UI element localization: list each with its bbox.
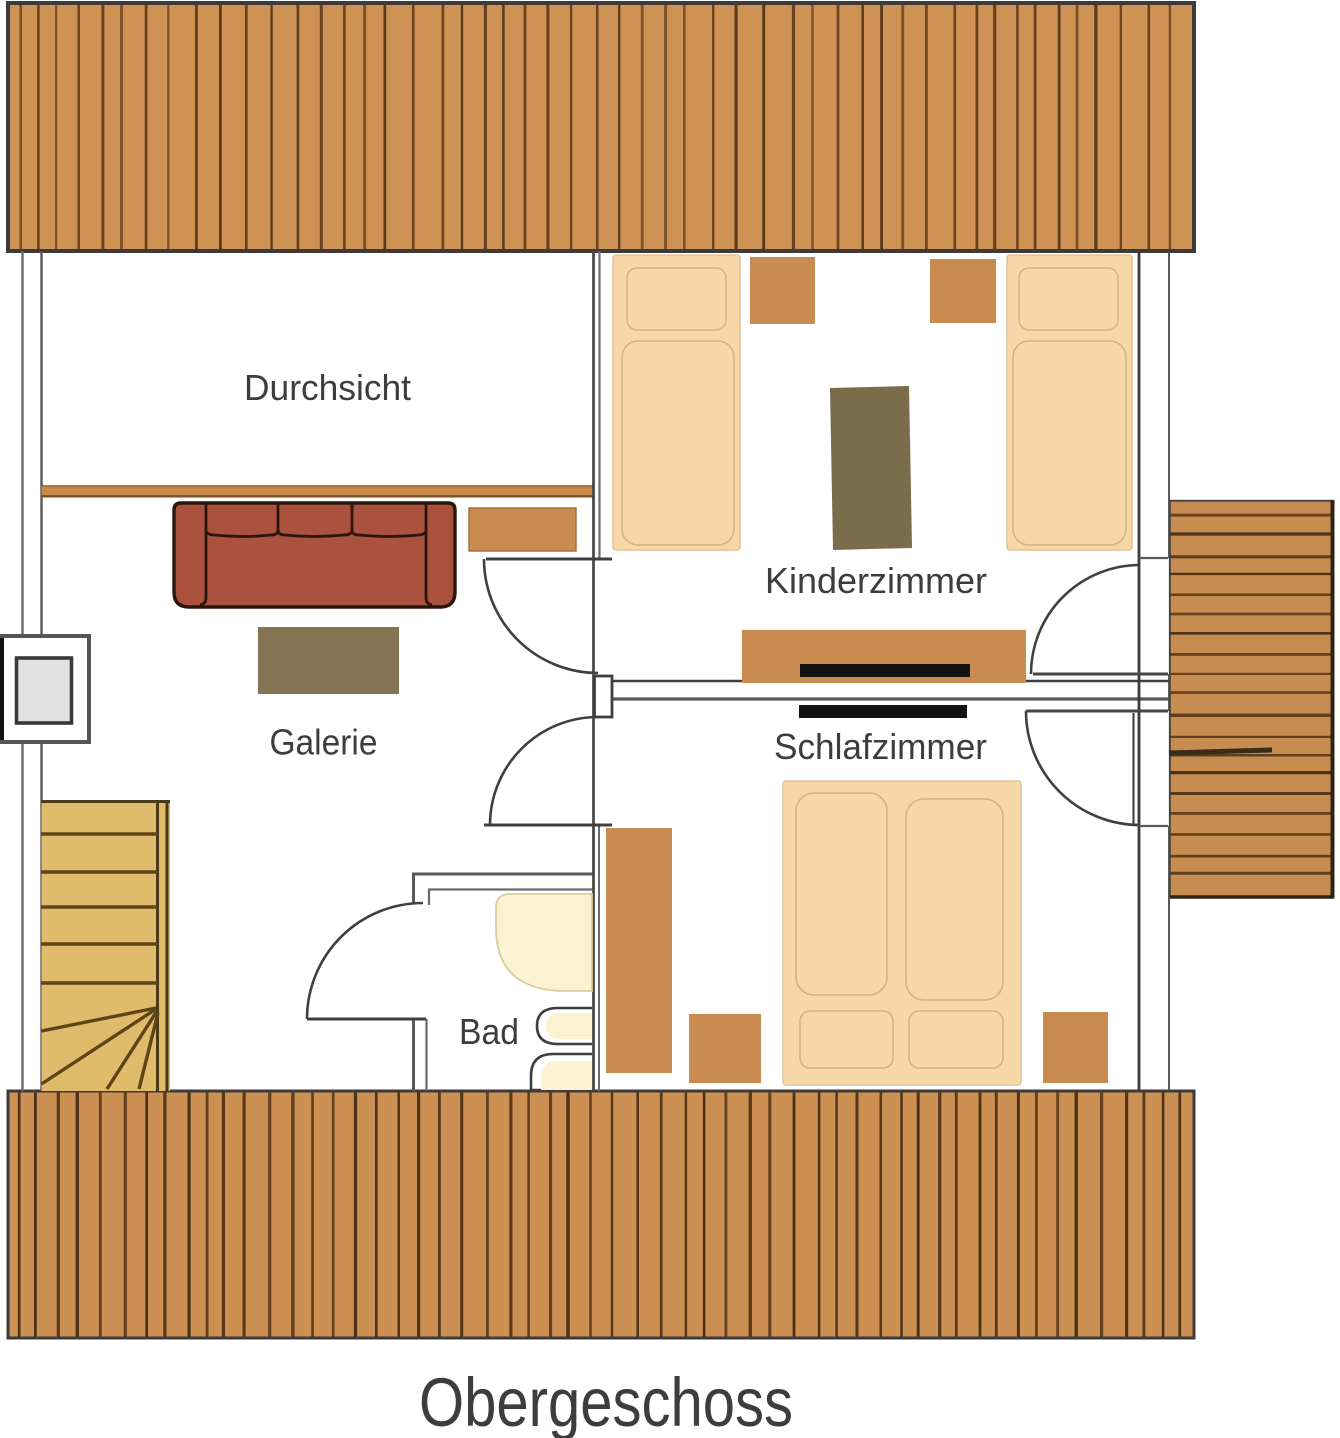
svg-text:Galerie: Galerie: [270, 722, 378, 763]
svg-text:Schlafzimmer: Schlafzimmer: [774, 726, 987, 767]
svg-text:Obergeschoss: Obergeschoss: [419, 1364, 793, 1438]
svg-text:Bad: Bad: [459, 1011, 519, 1052]
svg-text:Kinderzimmer: Kinderzimmer: [765, 560, 987, 601]
svg-text:Durchsicht: Durchsicht: [244, 367, 411, 408]
